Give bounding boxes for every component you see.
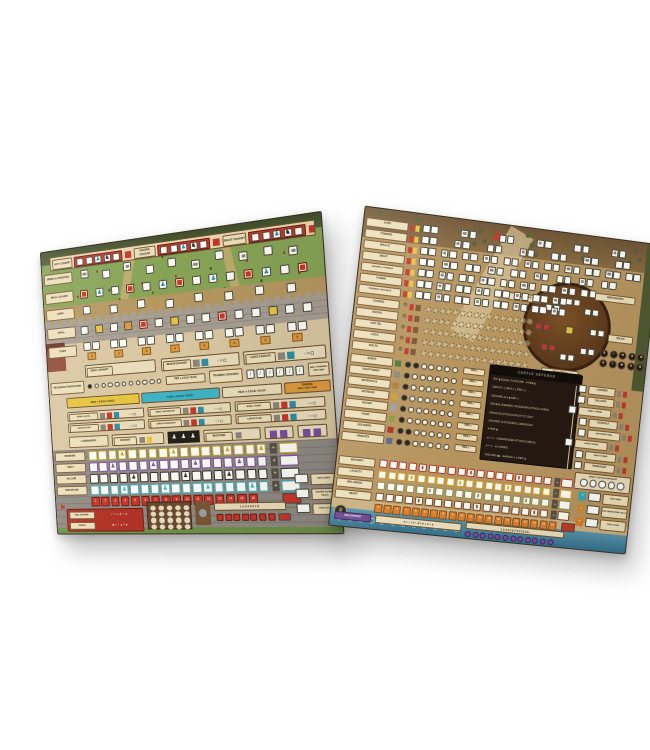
fort-cost-box: 4 [260, 336, 271, 345]
slot-cell [507, 235, 515, 243]
building-icon [477, 289, 481, 292]
round-number-cell: 1 [91, 497, 100, 507]
supply-circle [462, 343, 469, 350]
figure-dot [210, 267, 212, 270]
cohort-separator [213, 238, 220, 246]
slot-cell [495, 245, 503, 253]
tally-circle [176, 524, 182, 529]
reward-chip: ○ = ▢ [206, 404, 230, 414]
supply-circle [423, 327, 430, 334]
mini-red-cell [233, 514, 240, 521]
slot-cell [375, 492, 384, 501]
slot-cell [298, 262, 308, 273]
slot-cell [145, 264, 154, 274]
slot-cell [520, 507, 529, 516]
slot-cell [556, 275, 564, 283]
supply-circle [491, 336, 498, 343]
slot-cell: ▮ [474, 491, 483, 500]
slot-cell [623, 261, 631, 269]
supply-circle [527, 318, 534, 325]
slot-cell [476, 469, 485, 478]
slot-cell [481, 299, 489, 307]
building-icon [444, 263, 448, 266]
supply-circle [464, 332, 471, 339]
slot-cell [581, 289, 589, 297]
slot-cell [543, 477, 552, 486]
slot-cell [536, 239, 544, 247]
cost-chip [235, 432, 241, 438]
slot-cell [255, 325, 265, 335]
statue-chip [313, 428, 321, 436]
slot-cell [533, 272, 541, 280]
slot-cell [175, 277, 184, 287]
cost-chip [100, 424, 106, 430]
siege-cost-chip [619, 423, 624, 429]
slot-cell: ♟ [256, 443, 266, 453]
cost-chip [281, 401, 288, 408]
slot-cell [297, 320, 307, 330]
slot-cell [488, 266, 496, 274]
slot-cell [124, 321, 133, 331]
people-dot [438, 420, 445, 427]
slot-cell [170, 459, 179, 469]
slot-cell [395, 494, 404, 503]
slot-cell: ♟ [261, 267, 271, 277]
slot-cell [386, 482, 395, 491]
slot-cell [534, 476, 543, 485]
landmarks-label: LANDMARKS [69, 435, 109, 448]
slot-cell [501, 505, 510, 514]
people-dot [448, 399, 455, 406]
slot-cell [234, 327, 244, 337]
round-number-cell: 5 [131, 496, 140, 506]
slot-cell [483, 288, 491, 296]
summary-sign-chip: + [578, 491, 587, 501]
player-board-castle-side: ♛GUILDSMENMERCENARIESRELICSSIEGECRAFT♟⚔◆… [328, 206, 650, 555]
people-dot [444, 365, 451, 372]
slot-cell [416, 279, 424, 287]
slot-cell [150, 472, 159, 482]
slot-cell [559, 253, 567, 261]
slot-cell [527, 249, 535, 257]
slot-cell [601, 280, 609, 288]
slot-cell [633, 274, 641, 282]
slot-cell [496, 267, 504, 275]
slot-cell [551, 252, 559, 260]
building-icon [475, 300, 479, 303]
building-icon [539, 242, 543, 245]
cost-chip [183, 420, 189, 426]
score-track-label: PIETY [55, 463, 86, 474]
slot-cell [110, 485, 119, 494]
people-dot [398, 416, 405, 423]
slot-cell [137, 336, 146, 346]
slot-cell [487, 244, 495, 252]
slot-cell [92, 341, 100, 350]
tally-circle [167, 505, 173, 510]
slot-cell [214, 250, 223, 260]
slot-cell [513, 484, 522, 493]
slot-cell [575, 450, 584, 459]
slot-cell [194, 292, 203, 302]
people-dot [444, 432, 451, 439]
slot-cell [473, 298, 481, 306]
slot-cell [263, 245, 273, 256]
supply-circle [438, 318, 445, 325]
slot-cell [416, 485, 425, 494]
plus-chip: + [553, 489, 560, 499]
slot-cell [592, 309, 600, 317]
building-icon [438, 284, 442, 287]
slot-cell [578, 278, 586, 286]
archway-label: ARCHWAY [113, 436, 137, 446]
slot-cell [110, 339, 118, 348]
tally-circle [167, 511, 173, 516]
people-dot [410, 384, 417, 391]
slot-cell [245, 444, 255, 454]
slot-cell [531, 497, 540, 506]
slot-cell: ♟ [118, 450, 127, 460]
slot-cell [415, 290, 423, 298]
slot-cell [551, 296, 559, 304]
people-icon-chip [387, 426, 394, 433]
slot-cell [579, 347, 587, 355]
slot-cell [494, 289, 502, 297]
slot-cell [202, 470, 212, 480]
equals-chip: ○ = ▢ [297, 348, 321, 359]
tally-circle [183, 505, 189, 510]
cost-chip [147, 437, 153, 443]
slot-cell [246, 456, 256, 466]
supply-chip [408, 314, 413, 320]
slot-cell [170, 316, 179, 326]
slot-cell [397, 472, 406, 481]
cost-chip [411, 259, 415, 265]
slot-cell [483, 492, 492, 501]
slot-cell [532, 261, 540, 269]
slot-cell [158, 448, 167, 458]
cost-chip [114, 412, 120, 418]
slot-cell [454, 295, 462, 303]
slot-cell [492, 504, 501, 513]
slot-cell [535, 322, 543, 330]
supply-circle [505, 326, 512, 333]
slot-cell [100, 485, 109, 494]
building-icon [485, 257, 489, 260]
slot-cell [128, 449, 137, 459]
slot-cell [170, 471, 179, 481]
cost-chip [198, 407, 204, 413]
people-dot [436, 431, 443, 438]
statue-chip [280, 430, 288, 438]
slot-cell [584, 308, 592, 316]
building-icon [490, 269, 494, 272]
statue-chip [270, 430, 278, 438]
slot-cell [457, 467, 466, 476]
supply-circle [459, 310, 466, 317]
slot-cell [565, 326, 574, 335]
supply-circle [435, 340, 442, 347]
slot-cell [446, 272, 454, 280]
slot-cell [160, 472, 169, 482]
training-slot: / [275, 367, 284, 377]
building-icon [125, 264, 129, 268]
slot-cell [191, 259, 200, 269]
slot-cell [454, 240, 462, 248]
slot-cell [447, 466, 456, 475]
cost-chip [289, 401, 296, 408]
supply-chip [414, 315, 420, 322]
people-dot [405, 361, 412, 368]
resource-chip [287, 351, 295, 359]
slot-cell [376, 481, 385, 490]
slot-cell: ▮ [418, 463, 427, 472]
fort-cost-box: 5 [292, 333, 303, 342]
people-icon-chip [390, 404, 397, 411]
slot-cell: ▮ [530, 508, 539, 517]
people-icon-chip [392, 382, 399, 389]
cost-chip [409, 281, 413, 287]
slot-cell: ▮ [472, 502, 481, 511]
track-total-box [279, 442, 298, 453]
people-icon-chip [395, 360, 402, 367]
people-dot [415, 407, 422, 414]
supply-chip [413, 326, 419, 333]
slot-cell [223, 457, 233, 467]
slot-cell [224, 291, 233, 301]
resource-chip [201, 359, 208, 367]
slot-cell: ♟ [109, 462, 118, 471]
supply-circle [458, 321, 465, 328]
mini-red-cell [242, 514, 249, 521]
supply-chip [409, 303, 414, 309]
slot-cell [165, 299, 174, 309]
people-dot [447, 410, 454, 417]
slot-cell [502, 290, 510, 298]
cost-chip [191, 419, 197, 425]
people-dot [402, 383, 409, 390]
people-dot [439, 409, 446, 416]
slot-cell [234, 444, 244, 454]
slot-cell [387, 471, 396, 480]
slot-cell [154, 318, 163, 328]
slot-cell [625, 273, 633, 281]
supply-circle [420, 349, 427, 356]
cost-chip [139, 437, 145, 443]
slot-cell [235, 469, 245, 479]
slot-cell [572, 266, 580, 274]
siege-cost-chip [617, 390, 622, 396]
slot-cell: ♟ [120, 485, 129, 494]
supply-circle [507, 315, 514, 322]
slot-cell [567, 354, 575, 362]
statue-slot-box [297, 424, 328, 438]
siege-cost-chip [622, 402, 627, 408]
stat-total-box [557, 511, 570, 521]
reward-chip: ○ = ▢ [122, 421, 144, 430]
slot-cell: ♟ [224, 470, 234, 480]
slot-cell [427, 258, 435, 266]
slot-cell [568, 287, 576, 295]
slot-cell [424, 497, 433, 506]
summary-sign-chip: − [577, 504, 586, 514]
slot-cell [463, 501, 472, 510]
training-slot: / [246, 369, 255, 379]
slot-cell [585, 268, 593, 276]
slot-cell: ♟ [273, 230, 282, 239]
round-number-cell: 10 [457, 512, 466, 522]
plus-chip: + [554, 478, 561, 488]
meeple-box: ♟♟♟ [167, 430, 200, 444]
slot-cell [148, 448, 157, 458]
slot-cell [568, 405, 577, 414]
slot-cell [552, 263, 560, 271]
building-icon [521, 251, 525, 254]
reward-chip: ○ = ▢ [299, 398, 325, 408]
equals-chip: ○ = ▢ [211, 356, 233, 367]
slot-cell [520, 303, 528, 311]
building-icon [456, 242, 460, 245]
people-dot [449, 388, 456, 395]
supply-circle [461, 354, 468, 361]
reward-chip: ○ = ▢ [122, 409, 144, 418]
building-icon [241, 254, 245, 258]
slot-cell [573, 299, 581, 307]
slot-cell [108, 450, 117, 460]
slot-cell [559, 297, 567, 305]
castle-slot-circle [580, 479, 588, 487]
score-track-label: VALOUR [56, 474, 87, 484]
slot-cell [461, 229, 469, 237]
slot-cell [524, 475, 533, 484]
slot-cell [83, 342, 91, 351]
slot-cell [531, 305, 539, 313]
tally-circle [159, 518, 165, 523]
slot-cell [470, 253, 478, 261]
supply-circle [466, 310, 473, 317]
discontent-circle [510, 535, 517, 542]
slot-cell [577, 395, 586, 404]
slot-cell [427, 475, 436, 484]
slot-cell [591, 257, 599, 265]
building-label: LARGE HOVEL [70, 424, 99, 433]
slot-cell [396, 483, 405, 492]
summary-score-box [294, 474, 308, 484]
round-number-cell: 2 [383, 505, 392, 515]
slot-cell [81, 326, 89, 335]
cost-chip [408, 292, 412, 298]
slot-cell [195, 331, 204, 341]
slot-cell [138, 449, 147, 459]
slot-cell [212, 458, 222, 468]
mini-red-cell [250, 514, 258, 521]
mini-red-cell [259, 513, 267, 520]
slot-cell [532, 486, 541, 495]
tally-circle [160, 524, 166, 529]
summary-sign-chip: + [575, 517, 584, 527]
slot-cell [76, 258, 83, 267]
reward-chip: ○ = ▢ [299, 411, 325, 421]
slot-cell [442, 294, 450, 302]
slot-cell [459, 274, 467, 282]
figure-dot [175, 274, 177, 277]
slot-cell [474, 287, 482, 295]
slot-cell [544, 262, 552, 270]
slot-cell [109, 473, 118, 482]
slot-cell [288, 245, 298, 256]
supply-circle [469, 344, 476, 351]
slot-cell [168, 257, 177, 267]
slot-cell [123, 262, 132, 272]
round-number-cell: 6 [420, 508, 429, 518]
people-dot [405, 428, 412, 435]
slot-cell [146, 335, 155, 345]
slot-cell [597, 330, 605, 338]
cost-chip [107, 412, 113, 418]
slot-cell [130, 484, 139, 493]
cost-chip [413, 248, 417, 254]
mini-red-cell [225, 514, 232, 521]
supply-circle [523, 350, 530, 357]
slot-cell: ♟ [180, 243, 188, 252]
training-slot: / [256, 368, 265, 378]
supply-chip [410, 348, 416, 355]
slot-cell [574, 244, 582, 252]
slot-cell [501, 301, 509, 309]
cost-chip [183, 408, 189, 414]
slot-cell [214, 482, 224, 492]
building-icon [463, 232, 467, 235]
people-dot [445, 421, 452, 428]
people-dot [450, 377, 457, 384]
slot-cell [428, 247, 436, 255]
cost-chip [290, 414, 297, 421]
summary-score-box [295, 488, 309, 498]
siege-cost-chip [623, 457, 628, 463]
fort-cost-box: 3 [87, 352, 96, 360]
tally-circle [151, 518, 157, 523]
plus-chip: + [551, 499, 558, 509]
plus-chip: + [269, 443, 277, 454]
castle-slot-circle [617, 483, 625, 491]
supply-circle [500, 314, 507, 321]
slot-cell [160, 246, 168, 255]
supply-circle [493, 314, 500, 321]
building-icon [581, 280, 585, 283]
slot-cell: ♟ [203, 482, 213, 492]
well-bucket-art [199, 509, 207, 517]
building-icon [563, 289, 567, 292]
slot-cell [234, 309, 244, 319]
people-dot [419, 374, 426, 381]
slot-cell [213, 470, 223, 480]
slot-cell [510, 269, 518, 277]
castles-defeated-slots [580, 479, 625, 491]
cohort-label: RIGHT COHORT [222, 232, 246, 247]
slot-cell [511, 506, 520, 515]
slot-cell [192, 471, 202, 481]
slot-cell [473, 264, 481, 272]
slot-cell [611, 249, 619, 257]
slot-cell [524, 260, 532, 268]
people-dot [401, 394, 408, 401]
slot-cell [588, 290, 596, 298]
building-icon [193, 262, 197, 266]
slot-cell [486, 470, 495, 479]
slot-cell [89, 462, 98, 471]
slot-cell [482, 503, 491, 512]
slot-cell [582, 245, 590, 253]
